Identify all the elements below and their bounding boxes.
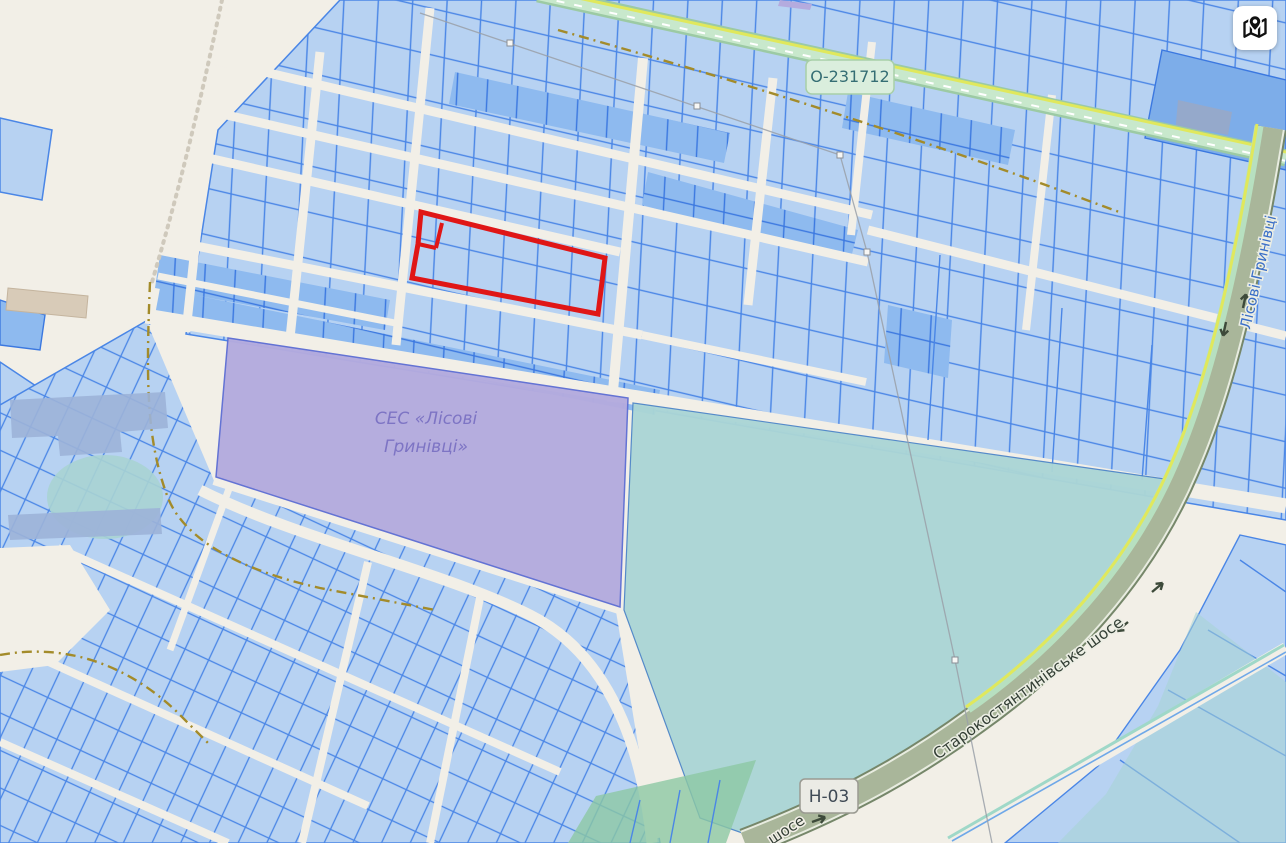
map-canvas[interactable]: О-231712 Н-03 Лісові Гринівці Старокостя… xyxy=(0,0,1286,843)
svg-text:Гринівці»: Гринівці» xyxy=(384,437,468,457)
parcel-small[interactable] xyxy=(0,118,52,200)
road-badge-label: Н-03 xyxy=(809,787,850,807)
road-badge-H-03: Н-03 xyxy=(800,779,858,813)
map-viewport[interactable]: О-231712 Н-03 Лісові Гринівці Старокостя… xyxy=(0,0,1286,843)
road-badge-label: О-231712 xyxy=(810,67,889,86)
map-style-button[interactable] xyxy=(1233,6,1277,50)
svg-text:СЕС «Лісові: СЕС «Лісові xyxy=(375,409,478,429)
map-with-pin-icon xyxy=(1241,14,1269,42)
road-badge-O-231712: О-231712 xyxy=(806,60,894,94)
